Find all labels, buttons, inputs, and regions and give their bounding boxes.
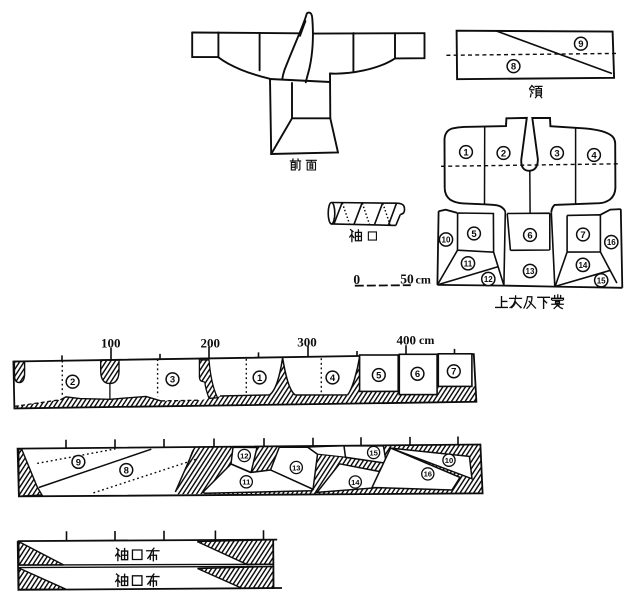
svg-text:5: 5 [471,229,477,240]
svg-text:6: 6 [527,230,532,241]
svg-text:1: 1 [257,373,263,384]
svg-text:15: 15 [597,276,606,285]
svg-text:5: 5 [376,370,382,381]
svg-text:4: 4 [591,150,597,161]
svg-text:7: 7 [580,230,585,241]
svg-text:2: 2 [70,377,75,388]
svg-text:cm: cm [419,333,434,347]
svg-text:13: 13 [526,267,535,276]
svg-text:10: 10 [445,456,453,465]
svg-text:13: 13 [292,463,300,472]
svg-text:300: 300 [297,335,317,350]
svg-text:15: 15 [369,448,378,457]
svg-text:8: 8 [511,62,516,73]
svg-text:12: 12 [484,275,493,284]
svg-text:11: 11 [242,478,251,487]
svg-text:400: 400 [397,332,417,347]
svg-text:200: 200 [201,335,221,350]
svg-text:1: 1 [463,147,469,158]
svg-text:9: 9 [578,39,583,50]
svg-text:cm: cm [416,273,431,287]
svg-text:3: 3 [170,375,175,386]
svg-text:16: 16 [607,238,616,247]
svg-text:10: 10 [442,236,451,245]
svg-text:11: 11 [464,259,473,268]
svg-text:12: 12 [240,451,248,460]
svg-text:6: 6 [415,369,420,380]
svg-text:14: 14 [578,261,587,270]
svg-text:9: 9 [76,457,81,468]
svg-text:0: 0 [353,272,360,287]
svg-text:14: 14 [351,478,360,487]
svg-text:16: 16 [424,470,432,479]
svg-text:7: 7 [451,367,456,378]
svg-text:8: 8 [124,465,129,476]
svg-text:3: 3 [554,148,559,159]
svg-text:50: 50 [400,272,414,287]
svg-text:2: 2 [501,148,506,159]
svg-text:4: 4 [330,373,336,384]
